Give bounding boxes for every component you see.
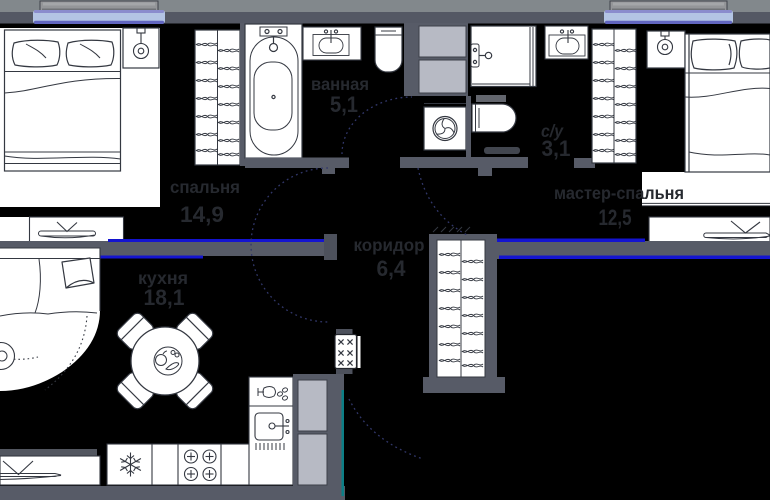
svg-text:6,4: 6,4 (377, 256, 407, 281)
svg-text:спальня: спальня (170, 177, 240, 197)
svg-text:5,1: 5,1 (330, 92, 358, 117)
svg-text:14,9: 14,9 (180, 202, 224, 227)
svg-text:3,1: 3,1 (542, 136, 571, 161)
svg-text:12,5: 12,5 (599, 205, 632, 230)
svg-text:мастер-спальня: мастер-спальня (554, 183, 684, 203)
svg-text:ванная: ванная (311, 74, 369, 94)
svg-text:коридор: коридор (354, 235, 425, 255)
svg-text:18,1: 18,1 (144, 285, 185, 310)
